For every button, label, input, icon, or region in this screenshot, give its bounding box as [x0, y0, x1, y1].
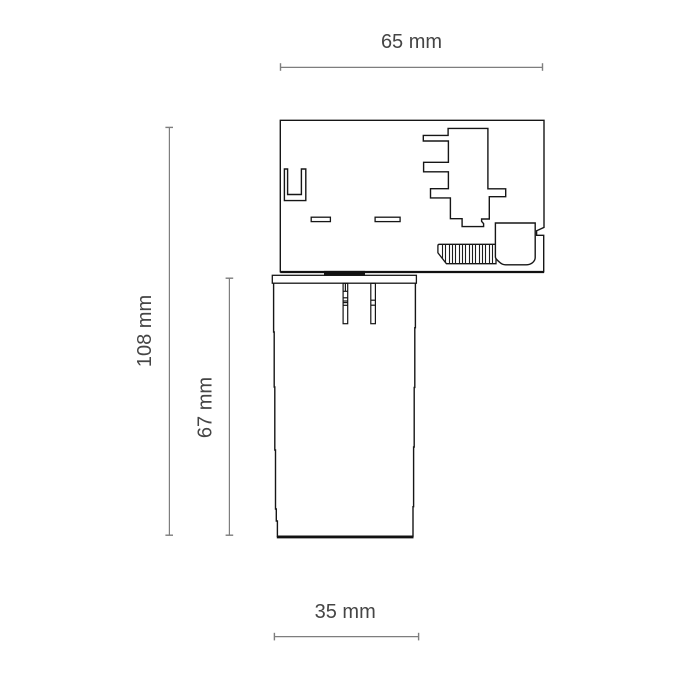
svg-text:35 mm: 35 mm — [315, 601, 376, 623]
svg-text:67 mm: 67 mm — [195, 377, 217, 438]
svg-text:108 mm: 108 mm — [134, 295, 156, 367]
svg-text:65 mm: 65 mm — [381, 31, 442, 53]
